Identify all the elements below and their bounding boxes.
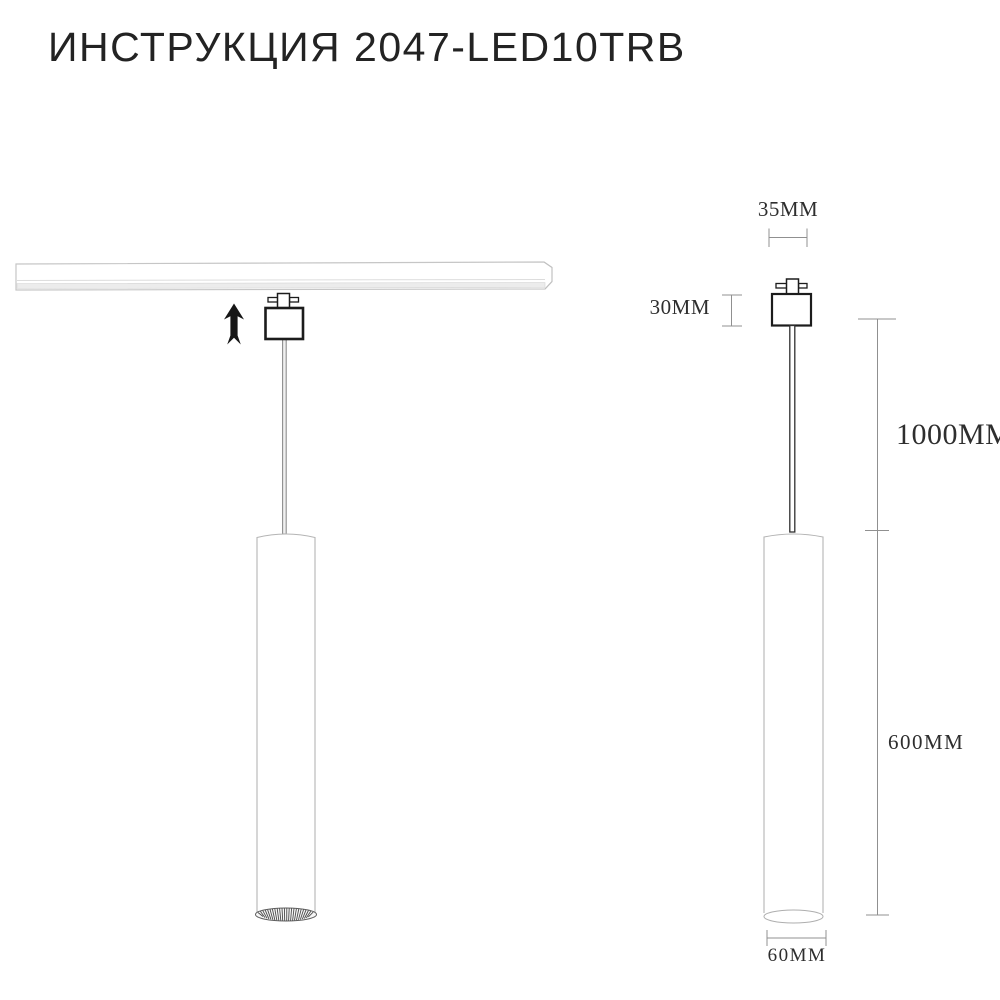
reflector-grille (256, 908, 317, 921)
label-adapter-height: 30MM (650, 295, 710, 319)
dimension-view: 35MM 30MM (650, 197, 1000, 966)
dimension-adapter-height: 30MM (650, 295, 742, 326)
instruction-sheet: ИНСТРУКЦИЯ 2047-LED10TRB (0, 0, 1000, 1000)
track-adapter-dimensioned (772, 279, 811, 326)
track-rail-groove (17, 283, 545, 289)
adapter-contact-left (776, 284, 787, 289)
label-adapter-width: 35MM (758, 197, 818, 221)
suspension-cable (790, 326, 795, 533)
label-body-length: 600MM (888, 730, 964, 754)
pendant-bottom-rim (764, 910, 823, 923)
adapter-plug (278, 294, 290, 309)
adapter-contact-right (799, 284, 808, 289)
dimension-body-diameter: 60MM (767, 930, 826, 966)
suspension-cable (283, 338, 287, 534)
adapter-body (266, 308, 304, 339)
pendant-cylinder (764, 534, 823, 913)
pendant-cylinder (257, 534, 315, 912)
label-suspension-length: 1000MM (896, 418, 1000, 451)
adapter-contact-right (290, 298, 299, 303)
adapter-body (772, 294, 811, 326)
installed-view (16, 262, 552, 921)
dimension-adapter-width: 35MM (758, 197, 818, 247)
dimension-lengths: 1000MM 600MM (858, 319, 1000, 915)
track-adapter (266, 294, 304, 340)
label-body-diameter: 60MM (768, 945, 827, 966)
track-rail (16, 262, 552, 290)
arrow-up-icon (224, 304, 244, 345)
instruction-diagram: 35MM 30MM (0, 0, 1000, 1000)
adapter-plug (787, 279, 799, 294)
reflector-vane (289, 908, 290, 920)
